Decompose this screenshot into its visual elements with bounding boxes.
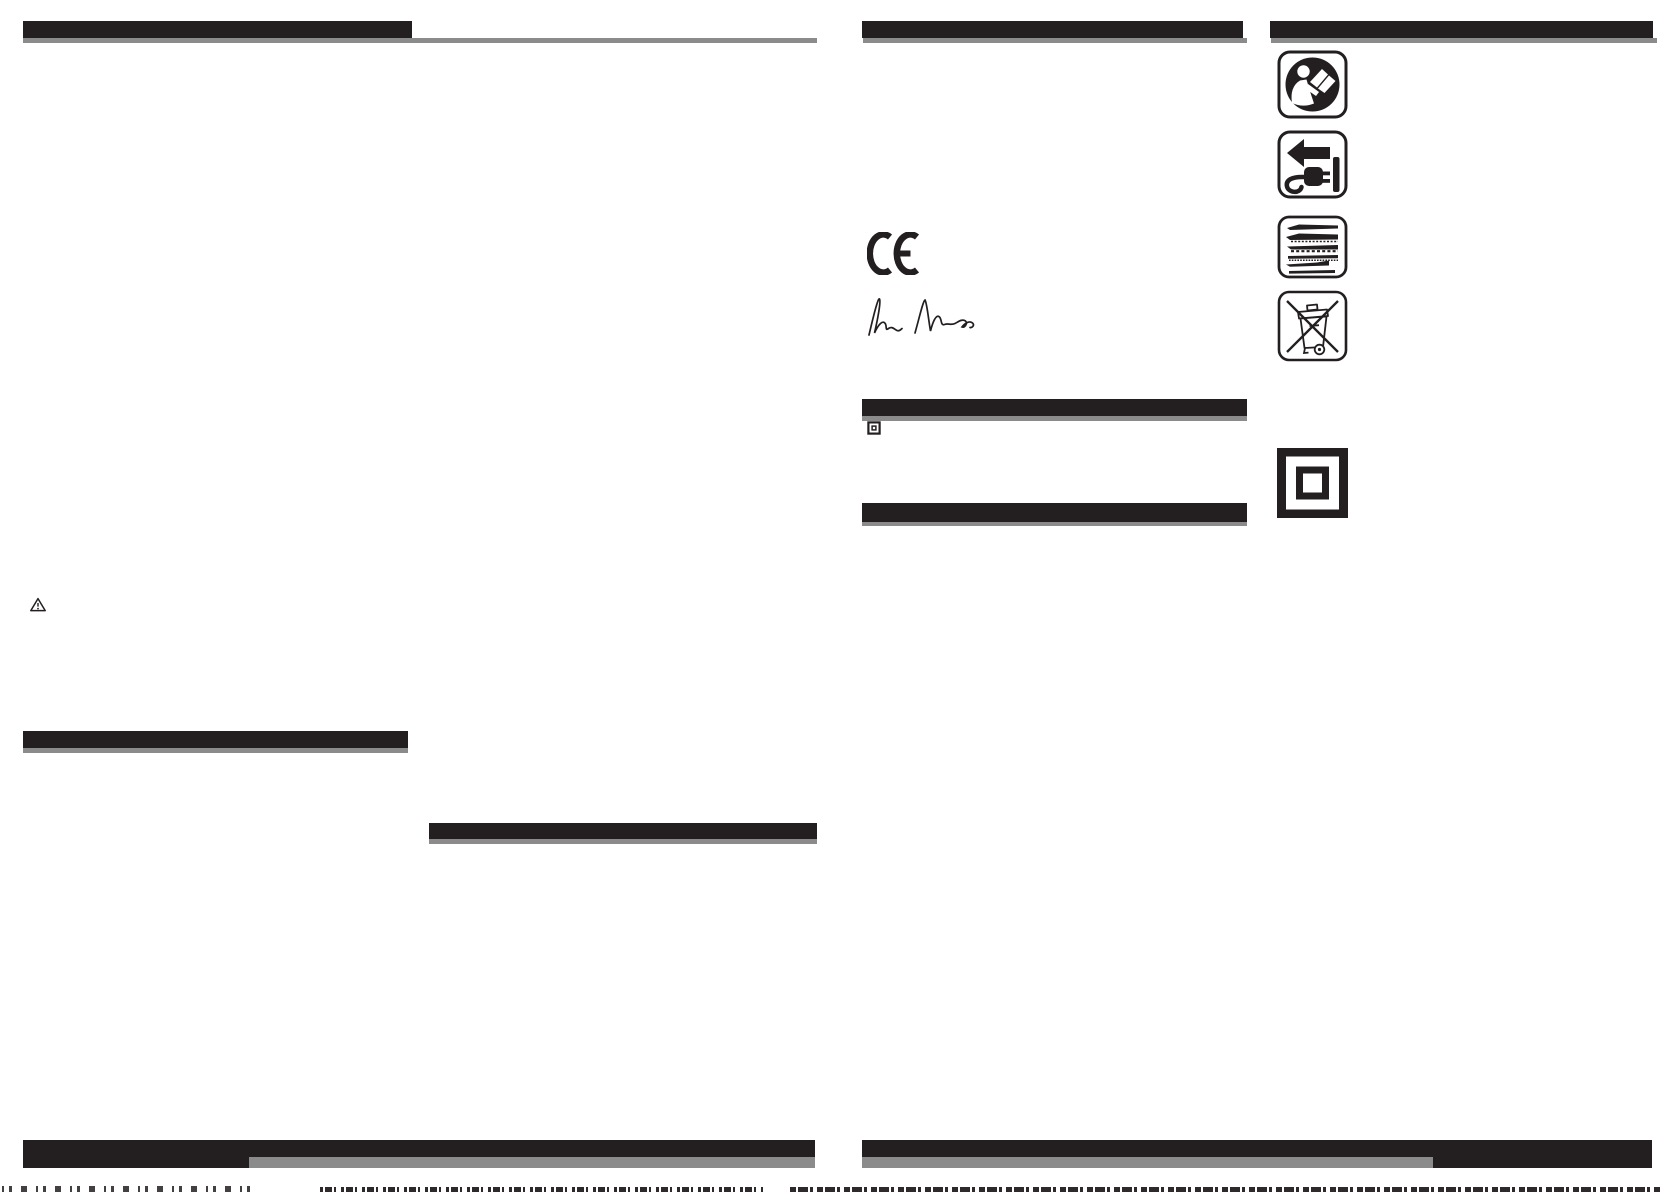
left-footer-gray-bar: [249, 1157, 815, 1168]
right-header-gray-bar-1: [863, 38, 1247, 43]
left-header-black-bar: [23, 21, 412, 38]
crossed-out-wheelie-bin-icon: [1277, 290, 1348, 362]
bottom-microtext-mid: [320, 1187, 763, 1192]
left-section-gray-bar-2: [429, 839, 817, 844]
right-section-gray-bar-1: [862, 416, 1247, 421]
right-section-gray-bar-2: [862, 522, 1247, 526]
left-section-gray-bar-1: [23, 748, 408, 753]
right-footer-black-block: [1433, 1157, 1652, 1168]
left-header-gray-bar: [23, 38, 817, 43]
right-section-black-bar-2: [862, 503, 1247, 522]
right-header-black-bar-2: [1270, 21, 1653, 38]
left-footer-black-bar: [23, 1140, 815, 1157]
ce-marking: [867, 232, 921, 275]
saw-blades-icon: [1277, 215, 1348, 279]
disconnect-mains-plug-icon: [1277, 130, 1348, 199]
left-footer-black-block: [23, 1157, 249, 1168]
double-insulation-icon: [1277, 448, 1348, 518]
signature: [862, 288, 982, 344]
read-manual-icon: [1277, 50, 1348, 119]
right-header-black-bar-1: [862, 21, 1243, 38]
left-section-black-bar-2: [429, 823, 817, 839]
bottom-microtext-right: [790, 1187, 1660, 1192]
warning-triangle-icon: [30, 597, 46, 612]
manual-page-scan: [0, 0, 1679, 1192]
double-insulation-small-icon: [867, 421, 881, 435]
right-section-black-bar-1: [862, 399, 1247, 416]
right-header-gray-bar-2: [1271, 38, 1657, 43]
right-footer-gray-bar: [862, 1157, 1433, 1168]
bottom-microtext-left: [2, 1186, 254, 1192]
left-section-black-bar-1: [23, 731, 408, 748]
right-footer-black-bar: [862, 1140, 1652, 1157]
